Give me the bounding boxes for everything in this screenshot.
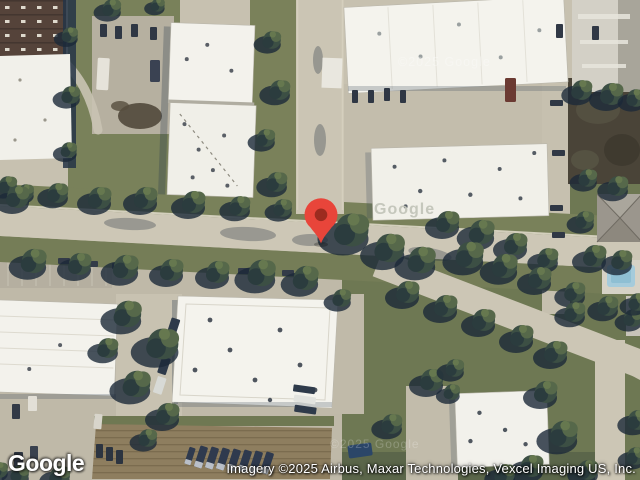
- watermark-copyright-roof: ©2025 Google: [398, 55, 491, 69]
- watermark-google-roof: Google: [374, 201, 435, 218]
- map-viewport[interactable]: ©2025 Google Google ©2025 Google Google …: [0, 0, 640, 480]
- building-brick-roof: [0, 0, 66, 56]
- satellite-imagery: ©2025 Google Google ©2025 Google: [0, 0, 640, 480]
- google-logo[interactable]: Google: [8, 450, 84, 477]
- imagery-attribution: Imagery ©2025 Airbus, Maxar Technologies…: [226, 461, 636, 476]
- building-house: [597, 194, 640, 242]
- watermark-copyright-road: ©2025 Google: [330, 437, 420, 451]
- building-gray-corner: [572, 0, 640, 92]
- building-white-topright: [344, 0, 568, 93]
- building-white-pair: [158, 22, 259, 197]
